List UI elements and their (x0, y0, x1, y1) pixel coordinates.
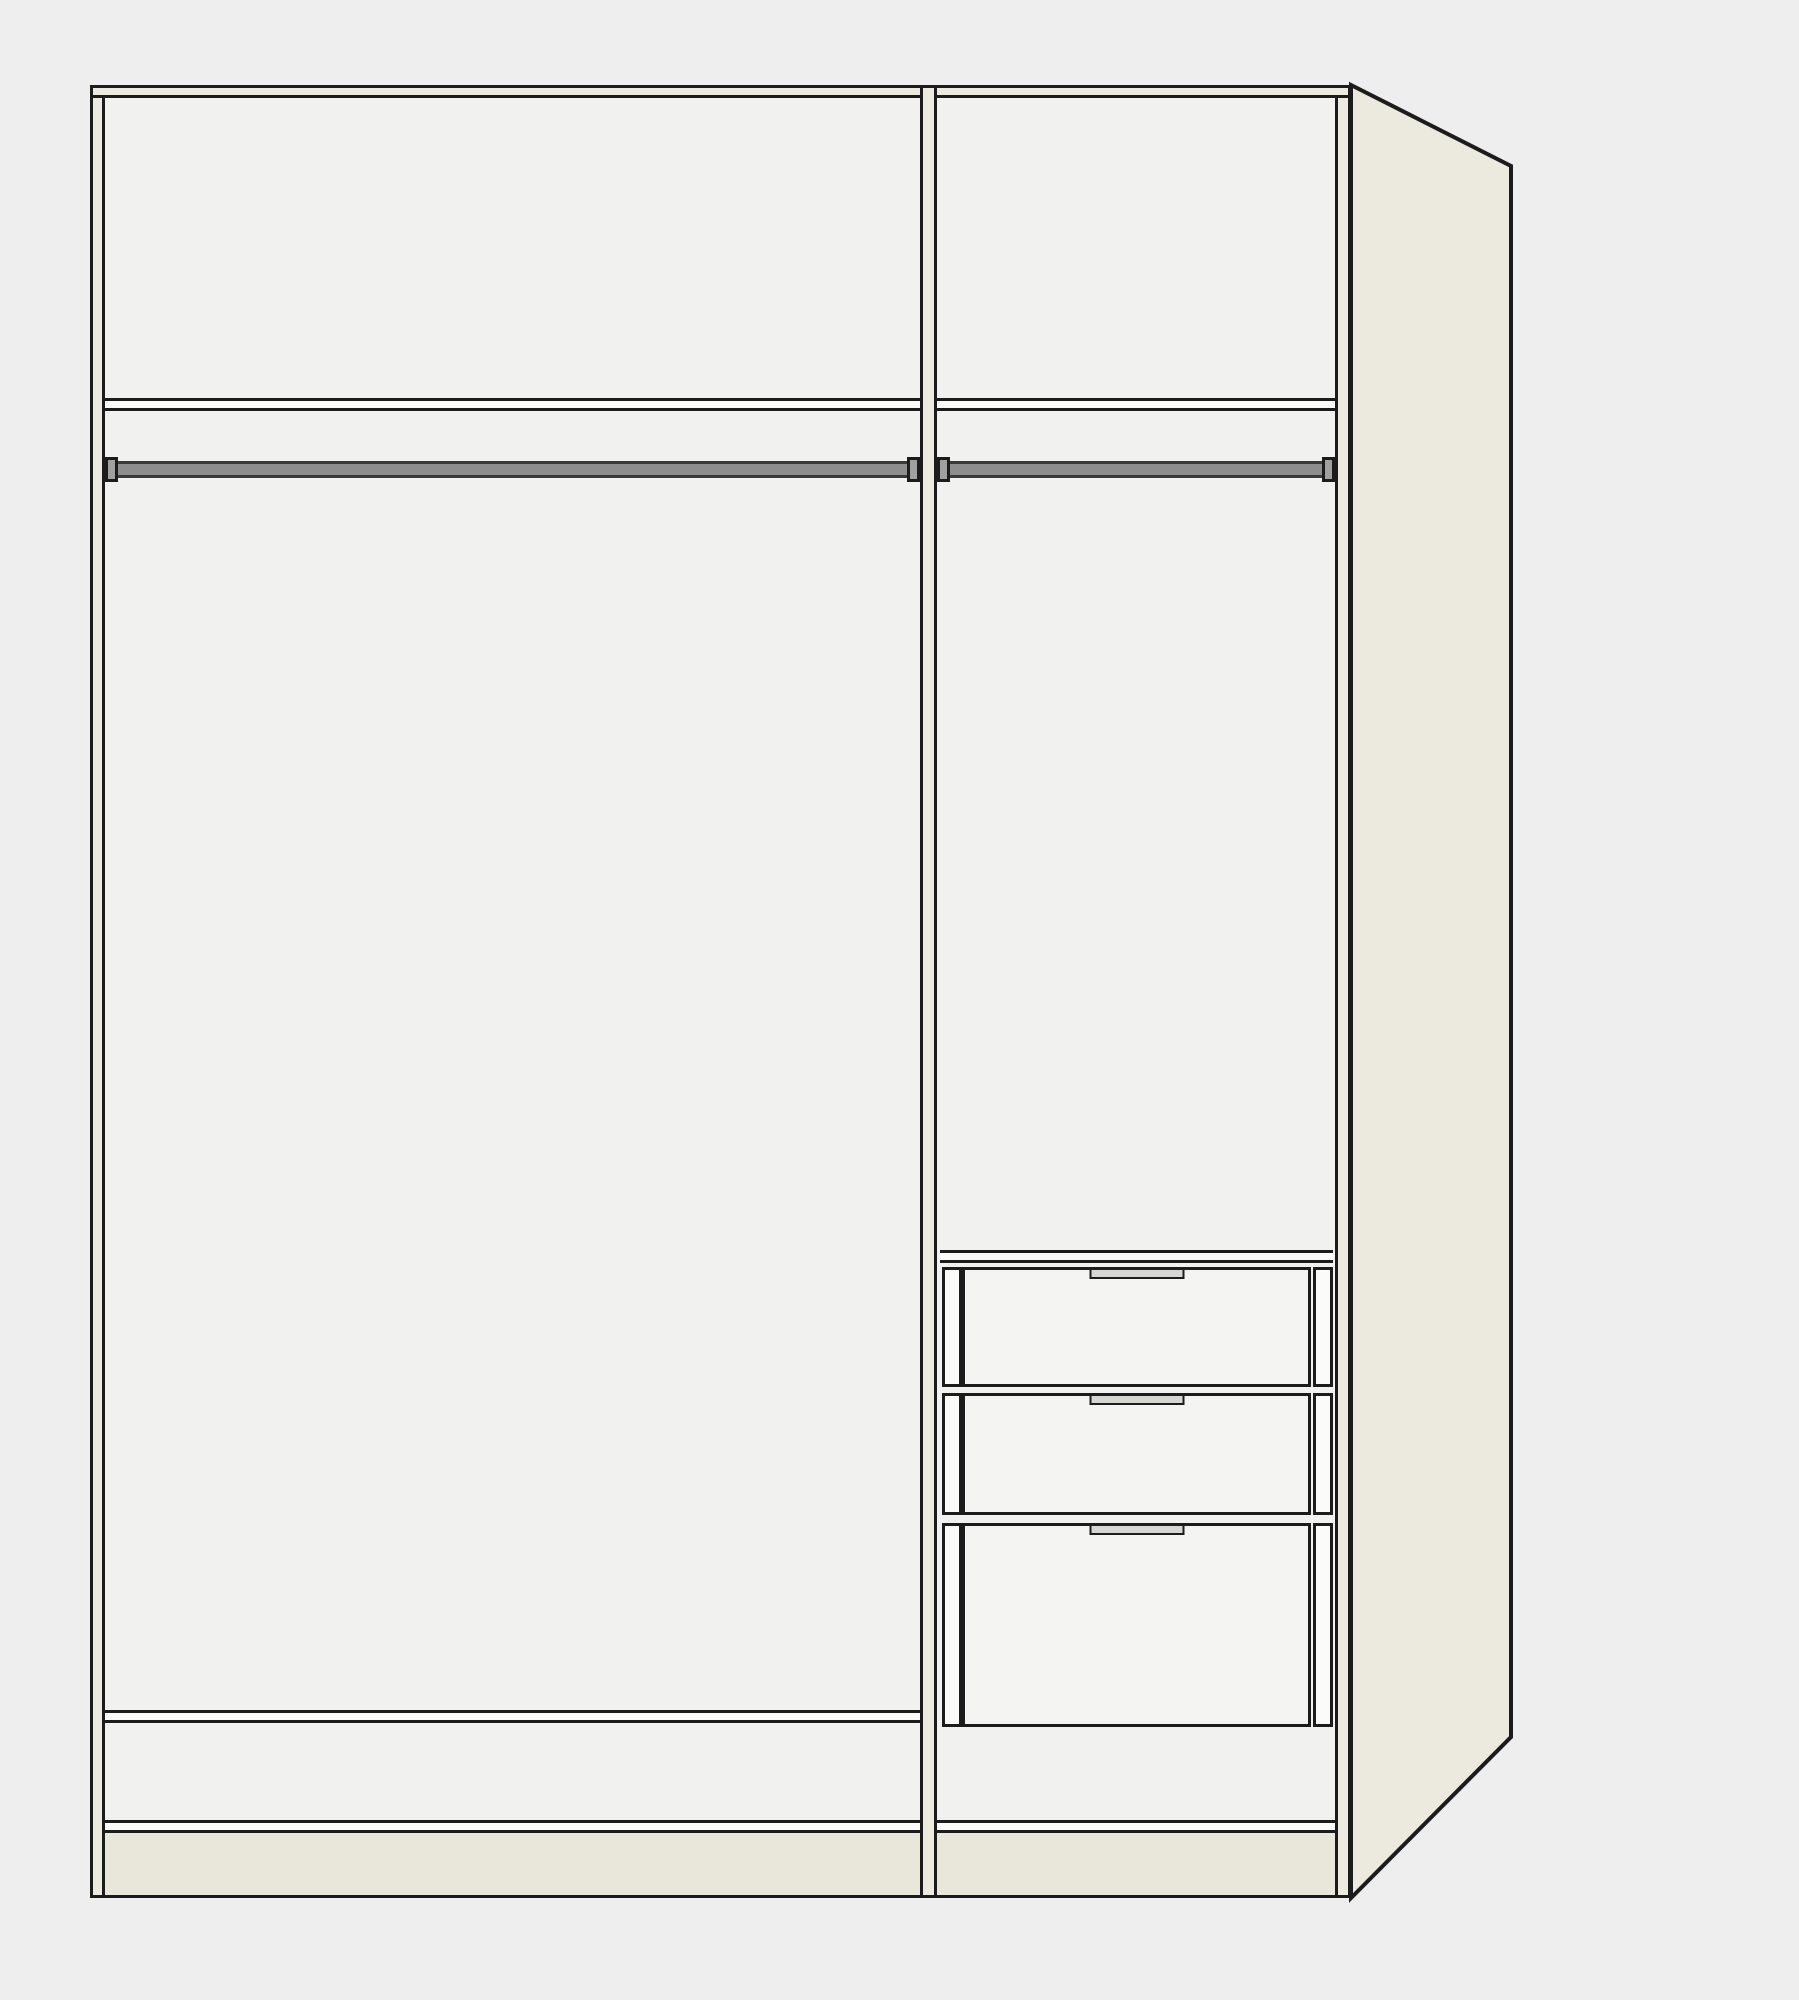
plinth (105, 1833, 1335, 1895)
drawer-stack[interactable] (940, 1250, 1333, 1727)
wardrobe-preview-canvas (0, 0, 1799, 2000)
right-top-shelf (937, 398, 1335, 411)
center-divider (920, 88, 937, 1895)
left-top-shelf (105, 398, 920, 411)
drawer-1-handle[interactable] (1089, 1270, 1184, 1279)
right-rail-end-cap-right (1322, 457, 1335, 482)
drawer-3-side-rail-left (942, 1523, 962, 1727)
left-rail-end-cap-right (907, 457, 920, 482)
left-side-wall (93, 88, 105, 1895)
drawer-row-2 (940, 1393, 1333, 1515)
drawer-1-side-rail-left (942, 1267, 962, 1387)
drawer-row-3 (940, 1523, 1333, 1727)
left-rail-end-cap-left (105, 457, 118, 482)
drawer-stack-top-band (940, 1250, 1333, 1263)
left-bottom-shelf (105, 1710, 920, 1723)
drawer-1-front[interactable] (962, 1267, 1311, 1387)
right-clothes-rail (947, 461, 1325, 478)
right-compartment[interactable] (937, 98, 1335, 1895)
top-frame-band (93, 88, 1348, 98)
drawer-3-handle[interactable] (1089, 1526, 1184, 1535)
bottom-panel-strip (105, 1820, 1335, 1833)
left-clothes-rail (115, 461, 910, 478)
drawer-2-side-rail-right (1313, 1393, 1333, 1515)
drawer-3-front[interactable] (962, 1523, 1311, 1727)
drawer-1-side-rail-right (1313, 1267, 1333, 1387)
drawer-2-handle[interactable] (1089, 1396, 1184, 1405)
right-rail-end-cap-left (937, 457, 950, 482)
drawer-2-side-rail-left (942, 1393, 962, 1515)
left-compartment[interactable] (105, 98, 920, 1895)
drawer-row-1 (940, 1267, 1333, 1387)
cabinet-front (90, 85, 1351, 1898)
right-side-wall (1335, 88, 1348, 1895)
side-panel (1351, 85, 1511, 1898)
drawer-2-front[interactable] (962, 1393, 1311, 1515)
drawer-3-side-rail-right (1313, 1523, 1333, 1727)
